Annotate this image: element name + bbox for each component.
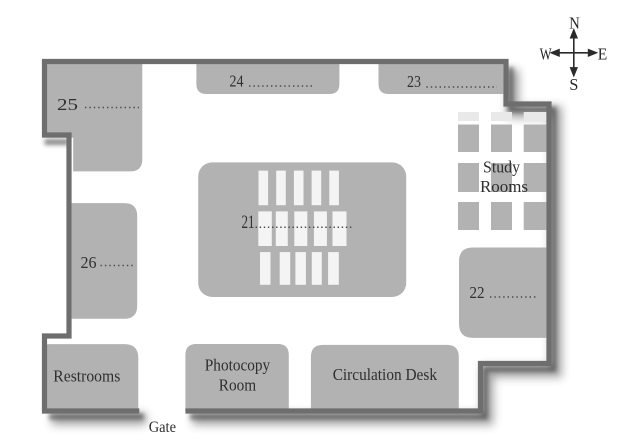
svg-text:22: 22 — [470, 283, 485, 302]
svg-text:S: S — [569, 75, 578, 94]
svg-text:Rooms: Rooms — [480, 177, 528, 196]
svg-text:Restrooms: Restrooms — [53, 367, 120, 386]
svg-text:Room: Room — [219, 376, 257, 395]
svg-text:W: W — [540, 44, 553, 63]
svg-text:Circulation Desk: Circulation Desk — [333, 365, 438, 384]
svg-text:E: E — [598, 44, 608, 63]
svg-text:23: 23 — [407, 72, 421, 91]
svg-text:N: N — [569, 14, 580, 33]
svg-text:21: 21 — [242, 213, 255, 233]
svg-text:24: 24 — [230, 71, 244, 90]
svg-text:25: 25 — [57, 95, 78, 114]
svg-text:26: 26 — [81, 253, 97, 272]
svg-text:Gate: Gate — [149, 419, 176, 436]
svg-text:Photocopy: Photocopy — [205, 356, 271, 375]
svg-text:Study: Study — [483, 158, 521, 177]
